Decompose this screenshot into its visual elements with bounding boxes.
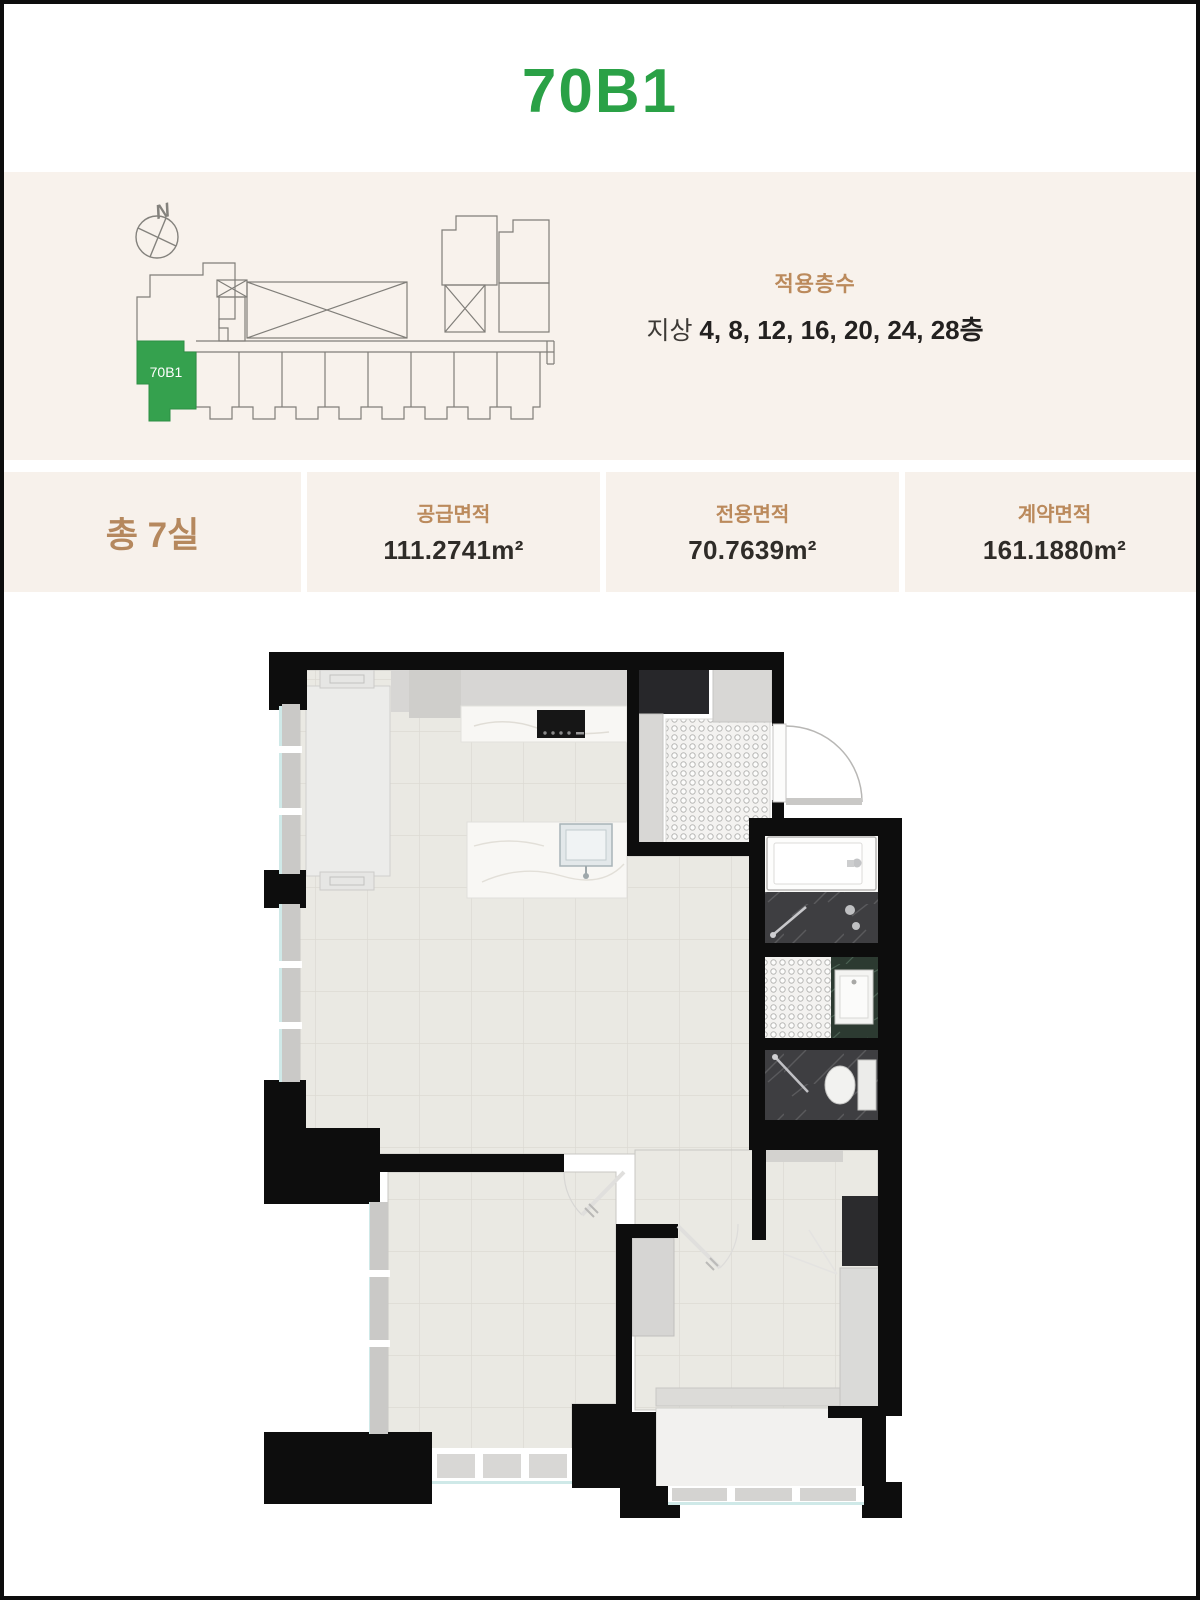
unit-sheet-page: 70B1 N (0, 0, 1200, 1600)
entrance-door (773, 724, 862, 805)
exclusive-area-label: 전용면적 (716, 498, 790, 527)
supply-area-label: 공급면적 (417, 498, 491, 527)
bathroom-stack (765, 836, 878, 1162)
unit-70b1-highlight: 70B1 (137, 341, 196, 421)
page-title: 70B1 (4, 56, 1196, 127)
contract-area-value: 161.1880m² (983, 535, 1126, 566)
north-label: N (153, 199, 173, 224)
living-wardrobe (306, 670, 390, 890)
contract-area-box: 계약면적 161.1880m² (905, 472, 1200, 592)
contract-area-label: 계약면적 (1018, 498, 1092, 527)
vanity-sink (835, 970, 873, 1024)
entry-dark-closet (639, 668, 709, 714)
kitchen-island (467, 822, 627, 898)
bathtub (767, 837, 876, 890)
total-rooms-label: 총 7실 (106, 507, 200, 558)
open-door-panel (632, 1238, 674, 1336)
total-rooms-box: 총 7실 (4, 472, 301, 592)
floor-plan (254, 624, 914, 1554)
wardrobe-light (840, 1268, 880, 1410)
floors-numbers: 4, 8, 12, 16, 20, 24, 28층 (699, 315, 983, 345)
vanity-mosaic-floor (765, 957, 831, 1038)
wardrobe-dark (842, 1196, 882, 1266)
shower-floor (765, 892, 878, 943)
building-outline (137, 216, 554, 419)
balcony-sliding-door (656, 1388, 842, 1406)
balcony-floor (656, 1408, 864, 1488)
exclusive-area-box: 전용면적 70.7639m² (606, 472, 899, 592)
balcony-window (668, 1486, 864, 1505)
supply-area-box: 공급면적 111.2741m² (307, 472, 600, 592)
applied-floors: 적용층수 지상 4, 8, 12, 16, 20, 24, 28층 (610, 268, 1020, 347)
applied-floors-label: 적용층수 (610, 268, 1020, 298)
exclusive-area-value: 70.7639m² (688, 535, 816, 566)
applied-floors-value: 지상 4, 8, 12, 16, 20, 24, 28층 (610, 310, 1020, 347)
unit-tag-label: 70B1 (150, 364, 183, 380)
site-key-plan: N 70B1 (125, 196, 561, 428)
floors-prefix: 지상 (646, 317, 699, 345)
supply-area-value: 111.2741m² (383, 535, 523, 566)
bedroom-bottom-window (432, 1448, 572, 1484)
